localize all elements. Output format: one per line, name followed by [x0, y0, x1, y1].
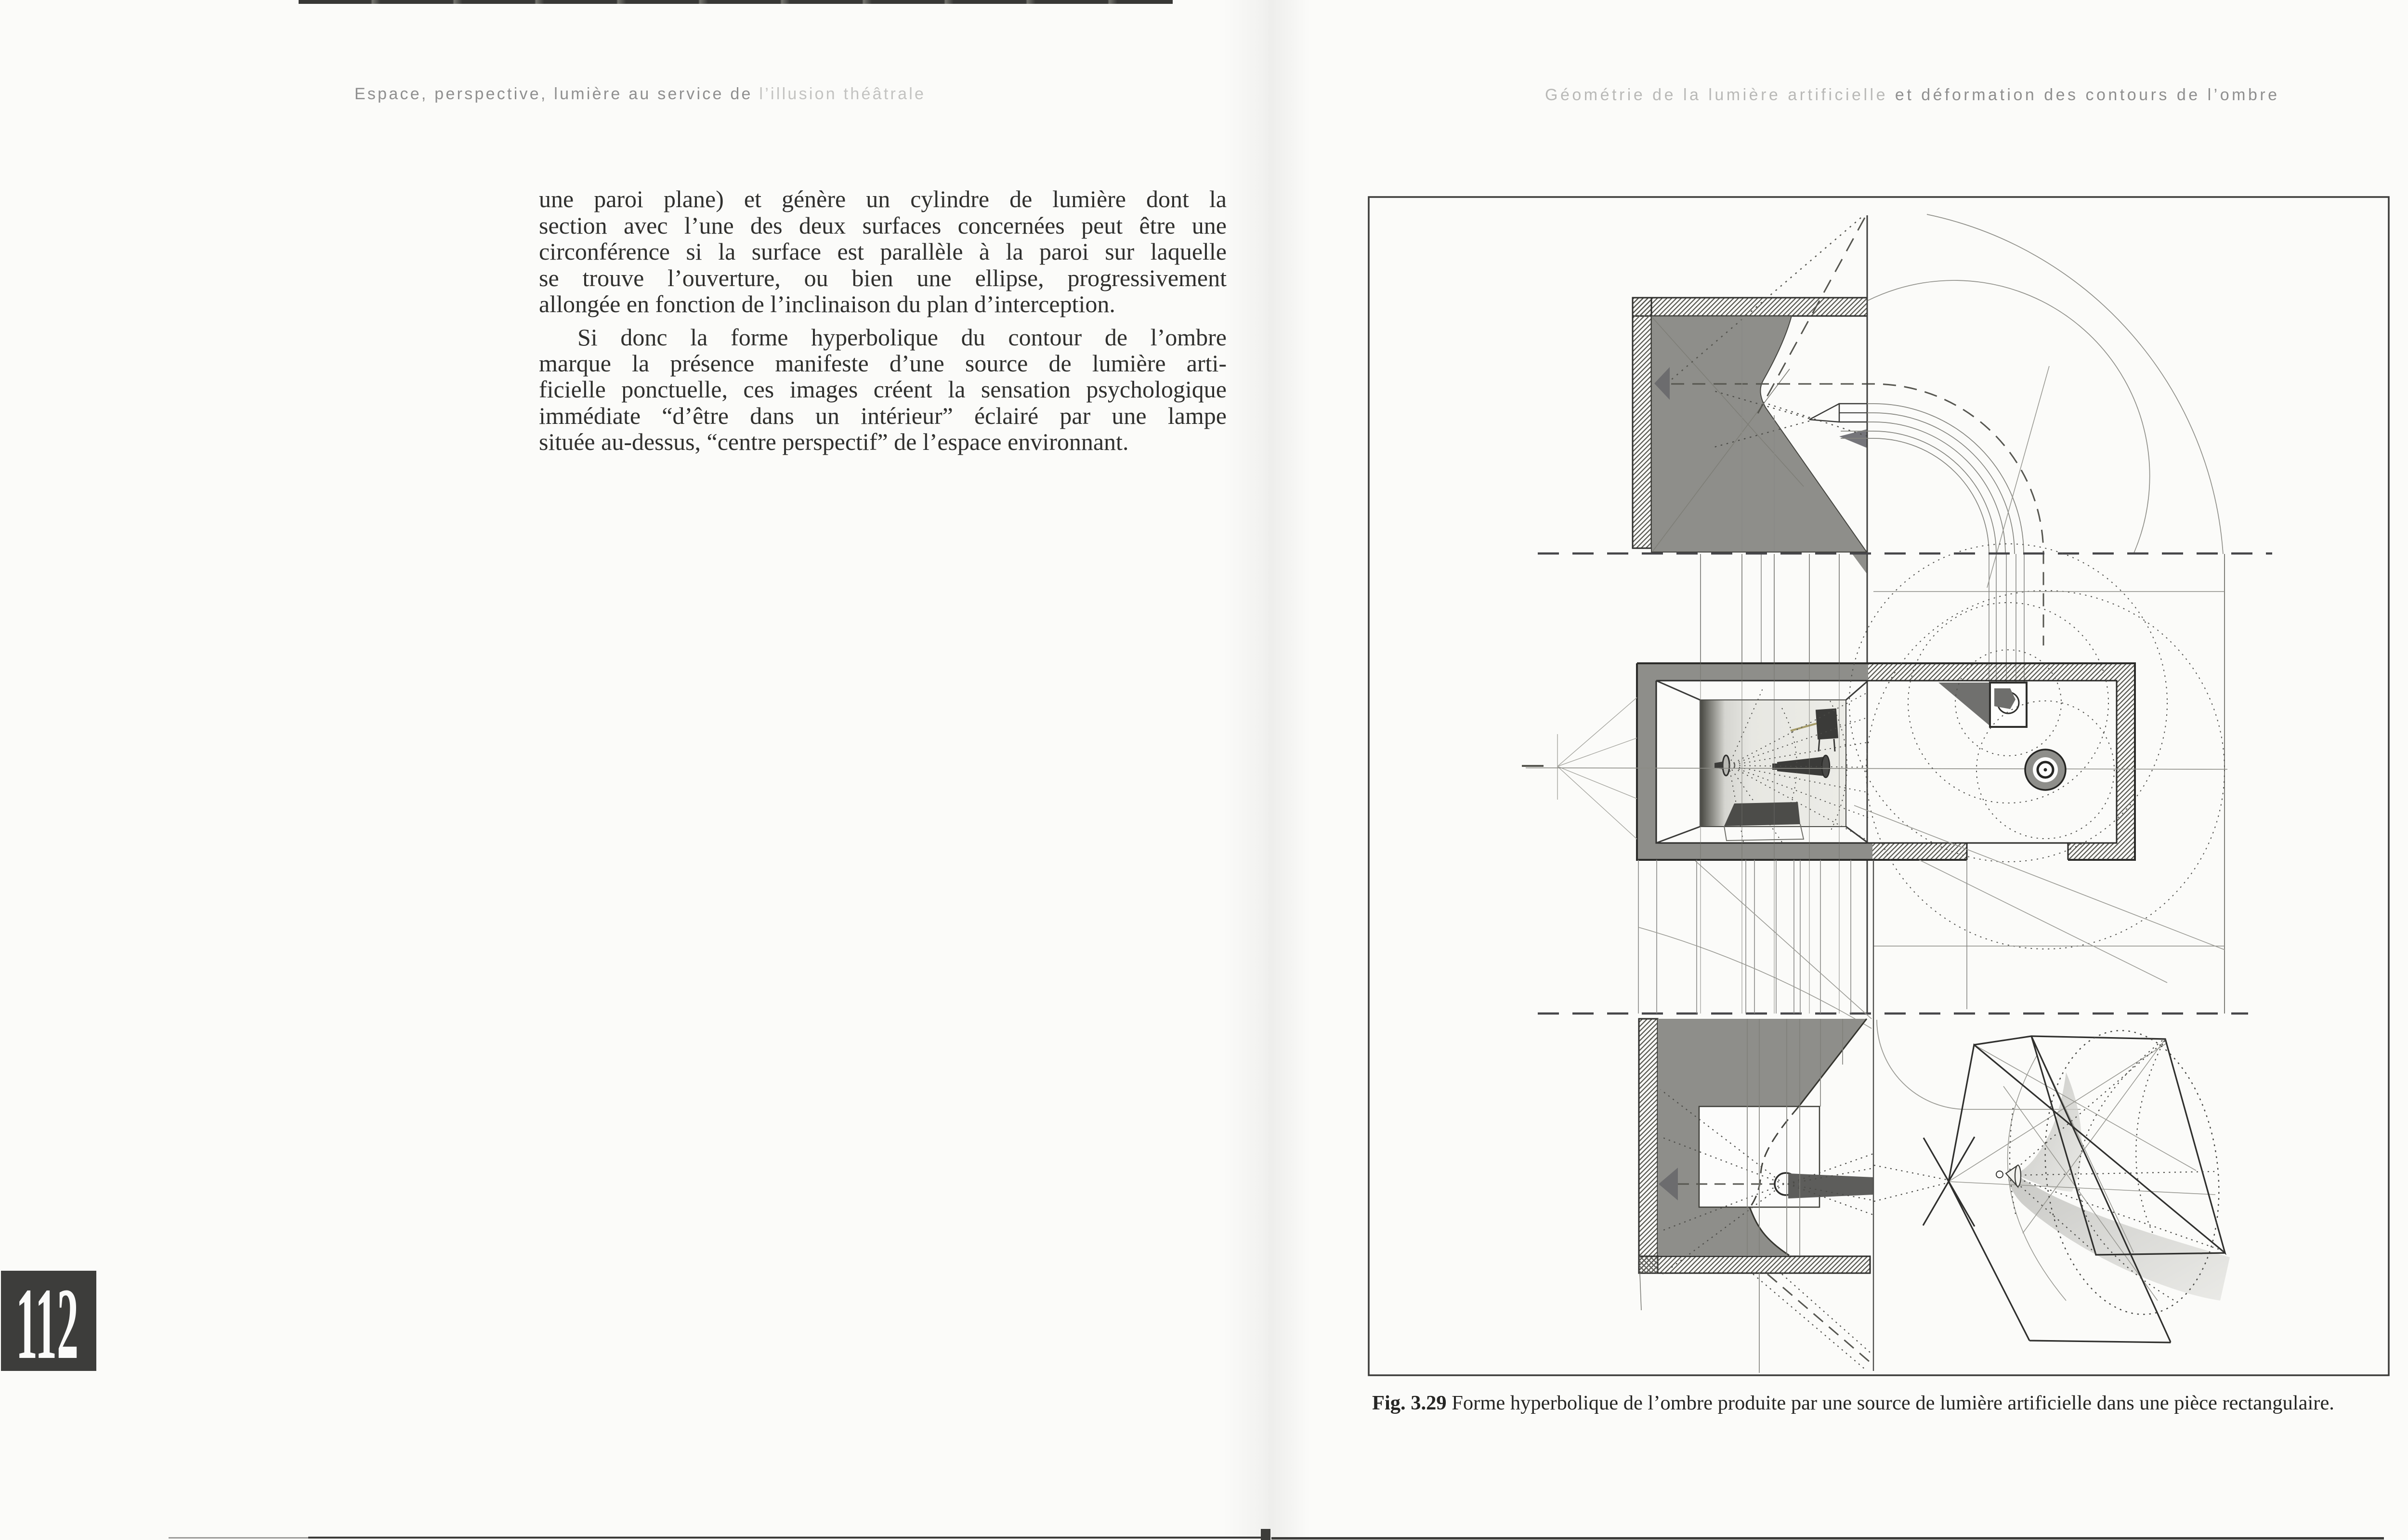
svg-text:112: 112	[16, 1271, 79, 1371]
